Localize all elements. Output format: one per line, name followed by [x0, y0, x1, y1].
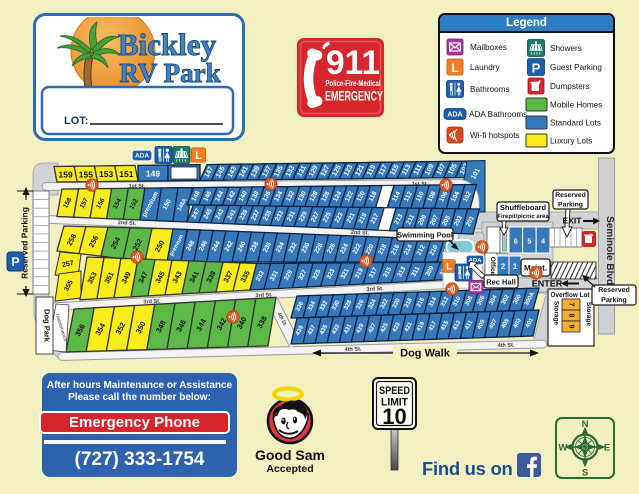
svg-text:1: 1 — [513, 262, 518, 271]
svg-text:P: P — [532, 61, 541, 76]
svg-text:Rec Hall: Rec Hall — [486, 278, 516, 287]
svg-text:Firepit/picnic area: Firepit/picnic area — [497, 213, 549, 220]
svg-text:7: 7 — [568, 303, 575, 307]
svg-text:RV Park: RV Park — [119, 58, 220, 88]
svg-text:Storage: Storage — [585, 302, 592, 327]
svg-text:4th St.: 4th St. — [498, 343, 515, 349]
svg-text:N: N — [582, 419, 589, 430]
svg-text:Dog Park: Dog Park — [43, 309, 52, 343]
svg-text:151: 151 — [119, 169, 133, 179]
svg-text:Parking: Parking — [601, 296, 627, 304]
svg-text:P: P — [11, 255, 19, 269]
svg-text:3rd St.: 3rd St. — [366, 286, 384, 293]
svg-text:9: 9 — [568, 325, 575, 329]
svg-text:E: E — [604, 443, 610, 454]
svg-text:Wi-fi hotspots: Wi-fi hotspots — [470, 131, 520, 140]
svg-text:153: 153 — [99, 169, 113, 179]
svg-text:EXIT: EXIT — [563, 216, 583, 226]
svg-text:911: 911 — [326, 44, 380, 82]
svg-text:Parking: Parking — [558, 201, 583, 208]
svg-text:Overflow Lot: Overflow Lot — [551, 291, 591, 299]
svg-text:149: 149 — [146, 169, 160, 179]
svg-text:Dog Walk: Dog Walk — [400, 348, 451, 360]
svg-text:155: 155 — [79, 169, 93, 179]
svg-text:ADA Bathrooms: ADA Bathrooms — [469, 110, 527, 119]
svg-text:5: 5 — [527, 237, 531, 246]
svg-text:Dumpsters: Dumpsters — [550, 82, 590, 91]
svg-text:Mailboxes: Mailboxes — [470, 43, 507, 52]
svg-text:Office: Office — [489, 257, 496, 276]
svg-text:Guest Parking: Guest Parking — [550, 63, 602, 72]
svg-text:Storage: Storage — [553, 301, 560, 326]
svg-text:Shuffleboard: Shuffleboard — [500, 203, 547, 212]
svg-text:LOT:: LOT: — [64, 115, 88, 127]
svg-text:L: L — [195, 149, 202, 162]
svg-text:4th St.: 4th St. — [345, 347, 362, 353]
svg-text:8: 8 — [568, 314, 575, 318]
svg-text:2: 2 — [501, 262, 506, 271]
svg-text:L: L — [451, 61, 458, 75]
svg-text:Mobile Homes: Mobile Homes — [550, 101, 602, 110]
svg-text:Standard Lots: Standard Lots — [550, 119, 601, 128]
svg-text:SPEED: SPEED — [379, 385, 410, 397]
svg-text:EMERGENCY: EMERGENCY — [325, 89, 383, 104]
svg-text:S: S — [582, 468, 588, 479]
svg-text:ADA: ADA — [447, 111, 462, 118]
svg-text:Swimming Pool: Swimming Pool — [397, 231, 453, 240]
svg-text:Police-Fire-Medical: Police-Fire-Medical — [326, 78, 381, 88]
svg-text:Luxury Lots: Luxury Lots — [550, 137, 592, 146]
svg-text:Showers: Showers — [550, 44, 582, 53]
svg-text:Accepted: Accepted — [266, 463, 313, 475]
svg-text:159: 159 — [59, 170, 73, 180]
svg-text:10: 10 — [382, 404, 406, 429]
svg-text:L: L — [446, 261, 452, 272]
svg-text:ENTER: ENTER — [532, 279, 563, 289]
svg-text:Reserved: Reserved — [598, 286, 630, 294]
svg-text:Bathrooms: Bathrooms — [470, 85, 510, 94]
svg-text:2nd St.: 2nd St. — [118, 220, 137, 227]
svg-text:Reserved: Reserved — [555, 192, 586, 199]
svg-text:Bickley: Bickley — [118, 27, 217, 62]
svg-text:4: 4 — [541, 237, 545, 246]
svg-text:Seminole Blvd.: Seminole Blvd. — [604, 216, 615, 288]
svg-text:Laundry: Laundry — [470, 63, 500, 72]
svg-text:ADA: ADA — [135, 153, 149, 160]
svg-text:Good Sam: Good Sam — [255, 447, 325, 463]
svg-text:6: 6 — [514, 237, 518, 246]
svg-text:W: W — [559, 443, 568, 454]
